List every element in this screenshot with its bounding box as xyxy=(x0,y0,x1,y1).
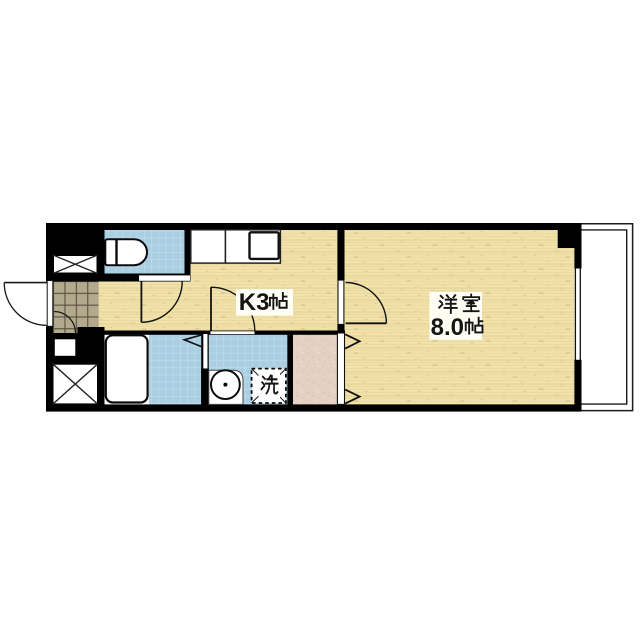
svg-text:K3: K3 xyxy=(239,289,270,316)
svg-text:8.0: 8.0 xyxy=(431,314,464,341)
